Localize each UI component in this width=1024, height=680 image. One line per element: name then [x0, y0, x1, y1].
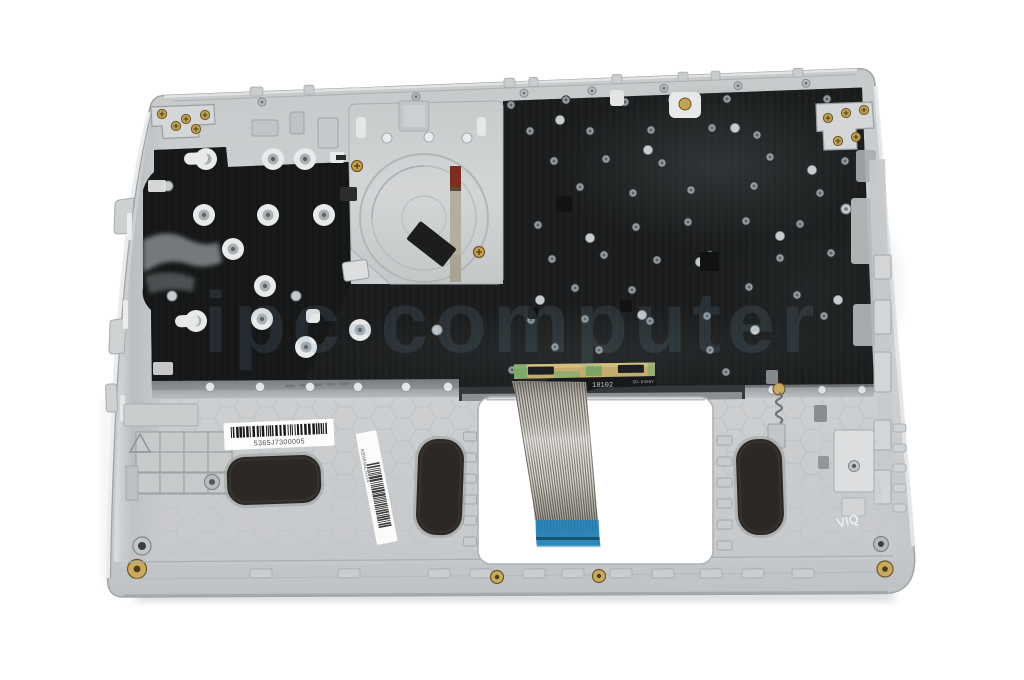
svg-text:ipc-computer: ipc-computer — [204, 275, 821, 371]
svg-text:SD-6489Y: SD-6489Y — [632, 379, 654, 385]
svg-text:18102: 18102 — [592, 382, 613, 390]
